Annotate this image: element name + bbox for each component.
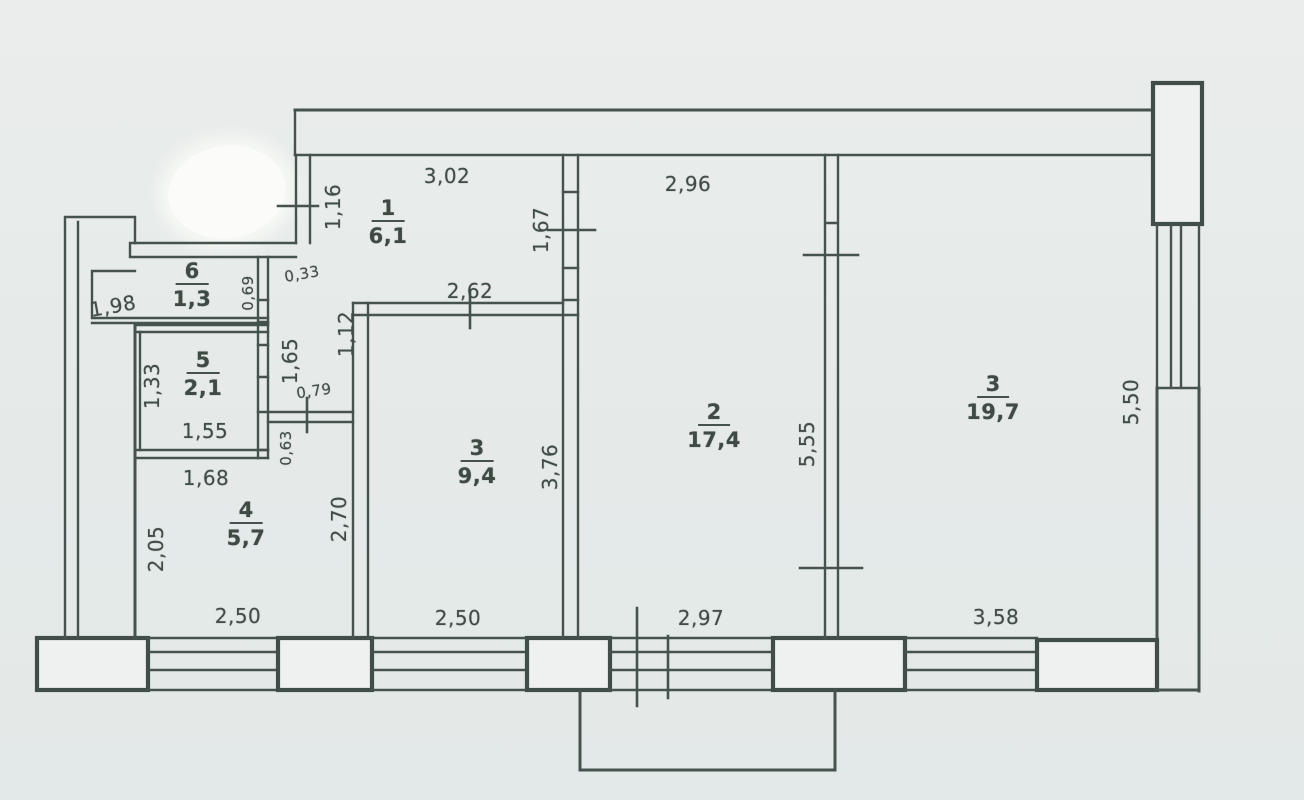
room-label-2: 2 17,4 bbox=[687, 401, 741, 452]
dimension-label: 5,55 bbox=[795, 421, 819, 468]
room-number: 4 bbox=[230, 499, 263, 524]
room-label-3-large: 3 19,7 bbox=[966, 373, 1020, 424]
room-area: 1,3 bbox=[173, 287, 212, 311]
dimension-label: 2,97 bbox=[678, 606, 725, 630]
dimension-label: 3,58 bbox=[973, 605, 1020, 629]
dimension-label: 1,55 bbox=[182, 419, 229, 443]
floorplan-scan: 1 6,1 2 17,4 3 9,4 3 19,7 4 5,7 5 2,1 6 … bbox=[0, 0, 1304, 800]
dimension-label: 0,69 bbox=[239, 275, 257, 310]
room-number: 6 bbox=[176, 260, 209, 285]
room2-room3-wall bbox=[800, 155, 862, 638]
room-area: 19,7 bbox=[966, 400, 1020, 424]
room-number: 5 bbox=[187, 349, 220, 374]
left-wall bbox=[65, 217, 135, 638]
room-label-1: 1 6,1 bbox=[369, 197, 408, 248]
room-label-4: 4 5,7 bbox=[227, 499, 266, 550]
dimension-label: 1,33 bbox=[140, 363, 164, 410]
room-label-3-small: 3 9,4 bbox=[458, 437, 497, 488]
room-area: 6,1 bbox=[369, 224, 408, 248]
room1-room2-wall bbox=[548, 155, 595, 638]
dimension-label: 1,68 bbox=[183, 466, 230, 490]
dimension-label: 3,02 bbox=[424, 164, 471, 188]
top-wall bbox=[295, 110, 1155, 155]
room-number: 1 bbox=[372, 197, 405, 222]
dimension-label: 3,76 bbox=[538, 444, 562, 491]
room-number: 2 bbox=[698, 401, 731, 426]
corridor-door-wall bbox=[268, 398, 353, 432]
room-area: 5,7 bbox=[227, 526, 266, 550]
bottom-wall-windows bbox=[37, 608, 1199, 706]
dimension-label: 1,12 bbox=[334, 311, 358, 358]
balcony bbox=[580, 690, 835, 770]
dimension-label: 1,67 bbox=[529, 207, 553, 254]
dimension-label: 2,05 bbox=[144, 526, 168, 573]
right-wall-window bbox=[1153, 83, 1202, 691]
entry-wall bbox=[130, 155, 318, 257]
room-number: 3 bbox=[977, 373, 1010, 398]
room-label-5: 5 2,1 bbox=[184, 349, 223, 400]
dimension-label: 0,63 bbox=[277, 430, 295, 465]
dimension-label: 2,70 bbox=[327, 496, 351, 543]
dimension-label: 5,50 bbox=[1119, 379, 1143, 426]
dimension-label: 1,65 bbox=[278, 338, 302, 385]
room-area: 2,1 bbox=[184, 376, 223, 400]
dimension-label: 2,50 bbox=[435, 606, 482, 630]
dimension-label: 2,96 bbox=[665, 172, 712, 196]
dimension-label: 2,50 bbox=[215, 604, 262, 628]
dimension-label: 2,62 bbox=[447, 279, 494, 303]
dimension-label: 1,16 bbox=[321, 184, 345, 231]
room-number: 3 bbox=[461, 437, 494, 462]
room-label-6: 6 1,3 bbox=[173, 260, 212, 311]
room-area: 9,4 bbox=[458, 464, 497, 488]
room-area: 17,4 bbox=[687, 428, 741, 452]
